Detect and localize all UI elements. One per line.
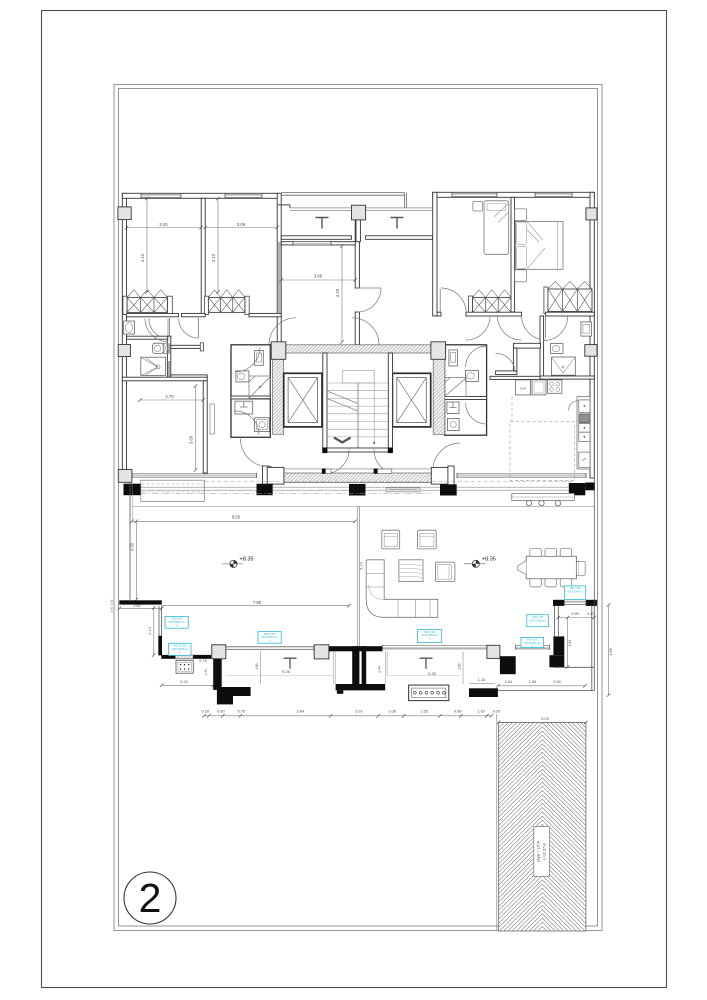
svg-text:90*2500mm: 90*2500mm bbox=[568, 590, 584, 594]
svg-text:L=12.67 m: L=12.67 m bbox=[543, 843, 547, 861]
svg-text:4.10: 4.10 bbox=[140, 253, 145, 262]
svg-text:1.36: 1.36 bbox=[529, 680, 536, 684]
svg-text:+8.35: +8.35 bbox=[239, 557, 253, 563]
svg-text:7.90: 7.90 bbox=[253, 600, 262, 605]
svg-text:3.05: 3.05 bbox=[314, 273, 323, 278]
svg-text:3.69: 3.69 bbox=[189, 435, 194, 444]
svg-text:0.10: 0.10 bbox=[110, 599, 114, 605]
svg-text:3.69: 3.69 bbox=[609, 648, 613, 655]
svg-text:slope = 15 %: slope = 15 % bbox=[537, 840, 541, 862]
svg-text:9.50: 9.50 bbox=[232, 515, 241, 520]
svg-text:3.05: 3.05 bbox=[237, 222, 246, 227]
svg-text:0.61: 0.61 bbox=[505, 680, 512, 684]
svg-text:2.14: 2.14 bbox=[148, 627, 152, 634]
svg-text:0.90: 0.90 bbox=[571, 612, 578, 616]
svg-text:0.89: 0.89 bbox=[454, 709, 462, 714]
svg-text:0.60: 0.60 bbox=[553, 680, 560, 684]
svg-text:1.20: 1.20 bbox=[204, 669, 208, 676]
svg-text:D/W: D/W bbox=[520, 386, 526, 390]
svg-text:1.10: 1.10 bbox=[477, 709, 485, 714]
svg-text:4.10: 4.10 bbox=[211, 253, 216, 262]
svg-text:6.14: 6.14 bbox=[359, 562, 363, 569]
svg-text:0.60: 0.60 bbox=[217, 709, 225, 714]
svg-text:4.20: 4.20 bbox=[335, 288, 340, 297]
svg-text:1.65: 1.65 bbox=[458, 663, 462, 669]
svg-text:0.10: 0.10 bbox=[110, 606, 114, 612]
svg-text:1.08: 1.08 bbox=[388, 709, 396, 714]
svg-text:1.55: 1.55 bbox=[420, 709, 428, 714]
svg-text:0.20: 0.20 bbox=[202, 709, 210, 714]
svg-text:3.84: 3.84 bbox=[296, 709, 304, 714]
svg-text:2.63: 2.63 bbox=[568, 640, 572, 647]
svg-text:3.03: 3.03 bbox=[541, 717, 548, 721]
svg-text:2.70: 2.70 bbox=[165, 394, 174, 399]
svg-text:5.28: 5.28 bbox=[282, 670, 289, 674]
svg-text:2: 2 bbox=[139, 875, 162, 921]
svg-text:1.60: 1.60 bbox=[134, 604, 141, 608]
svg-text:2.03: 2.03 bbox=[355, 709, 363, 714]
svg-text:1.10: 1.10 bbox=[478, 678, 485, 682]
svg-text:120*2750mm: 120*2750mm bbox=[529, 618, 546, 622]
svg-text:1.44: 1.44 bbox=[377, 666, 381, 673]
svg-text:5.35: 5.35 bbox=[428, 672, 435, 676]
svg-text:0.20: 0.20 bbox=[493, 709, 501, 714]
svg-text:0.75: 0.75 bbox=[238, 709, 246, 714]
svg-text:0.47: 0.47 bbox=[587, 612, 594, 616]
svg-text:1.65: 1.65 bbox=[255, 663, 259, 669]
svg-text:0.75: 0.75 bbox=[199, 659, 206, 663]
svg-text:3.20: 3.20 bbox=[159, 222, 168, 227]
svg-text:2.22: 2.22 bbox=[180, 680, 187, 684]
svg-text:+8.35: +8.35 bbox=[482, 556, 496, 562]
